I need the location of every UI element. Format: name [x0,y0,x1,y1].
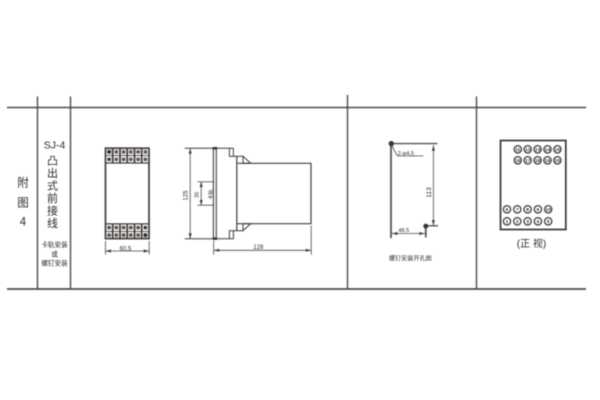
svg-text:60.5: 60.5 [120,246,132,252]
svg-text:15: 15 [555,147,561,153]
svg-text:4: 4 [537,219,540,225]
svg-text:卡轨: 卡轨 [206,189,214,199]
svg-text:16: 16 [515,158,521,164]
svg-text:6: 6 [506,207,509,213]
svg-text:螺钉安装开孔图: 螺钉安装开孔图 [389,254,432,262]
svg-text:前: 前 [47,191,58,205]
svg-text:10: 10 [545,207,551,213]
svg-text:13: 13 [535,147,541,153]
svg-text:11: 11 [515,147,520,153]
svg-text:18: 18 [535,158,541,164]
svg-text:20: 20 [555,158,561,164]
svg-text:1: 1 [506,219,509,225]
svg-text:线: 线 [47,216,58,230]
svg-text:48.5: 48.5 [398,228,409,234]
svg-text:19: 19 [545,158,551,164]
svg-text:接: 接 [47,205,58,218]
svg-text:2-φ4.5: 2-φ4.5 [398,151,414,157]
svg-text:螺钉安装: 螺钉安装 [41,259,68,268]
svg-text:14: 14 [545,147,551,153]
svg-text:125: 125 [183,190,189,201]
svg-text:35: 35 [195,192,201,198]
svg-text:2: 2 [516,219,519,225]
svg-text:图: 图 [17,197,29,210]
svg-text:17: 17 [525,158,531,164]
svg-text:113: 113 [426,187,433,198]
svg-text:凸: 凸 [47,156,58,168]
svg-text:卡轨安装: 卡轨安装 [41,240,68,249]
svg-text:或: 或 [51,250,58,259]
svg-text:7: 7 [516,207,519,213]
svg-text:128: 128 [253,245,264,251]
svg-text:附: 附 [17,176,29,190]
svg-text:3: 3 [526,219,529,225]
svg-text:8: 8 [526,207,529,213]
svg-text:9: 9 [537,207,540,213]
svg-text:5: 5 [547,219,550,225]
svg-text:(正 视): (正 视) [517,237,546,250]
svg-text:式: 式 [47,180,58,193]
svg-text:出: 出 [47,166,58,180]
svg-text:SJ-4: SJ-4 [44,140,66,152]
svg-text:12: 12 [525,147,531,153]
svg-text:4: 4 [20,217,27,229]
